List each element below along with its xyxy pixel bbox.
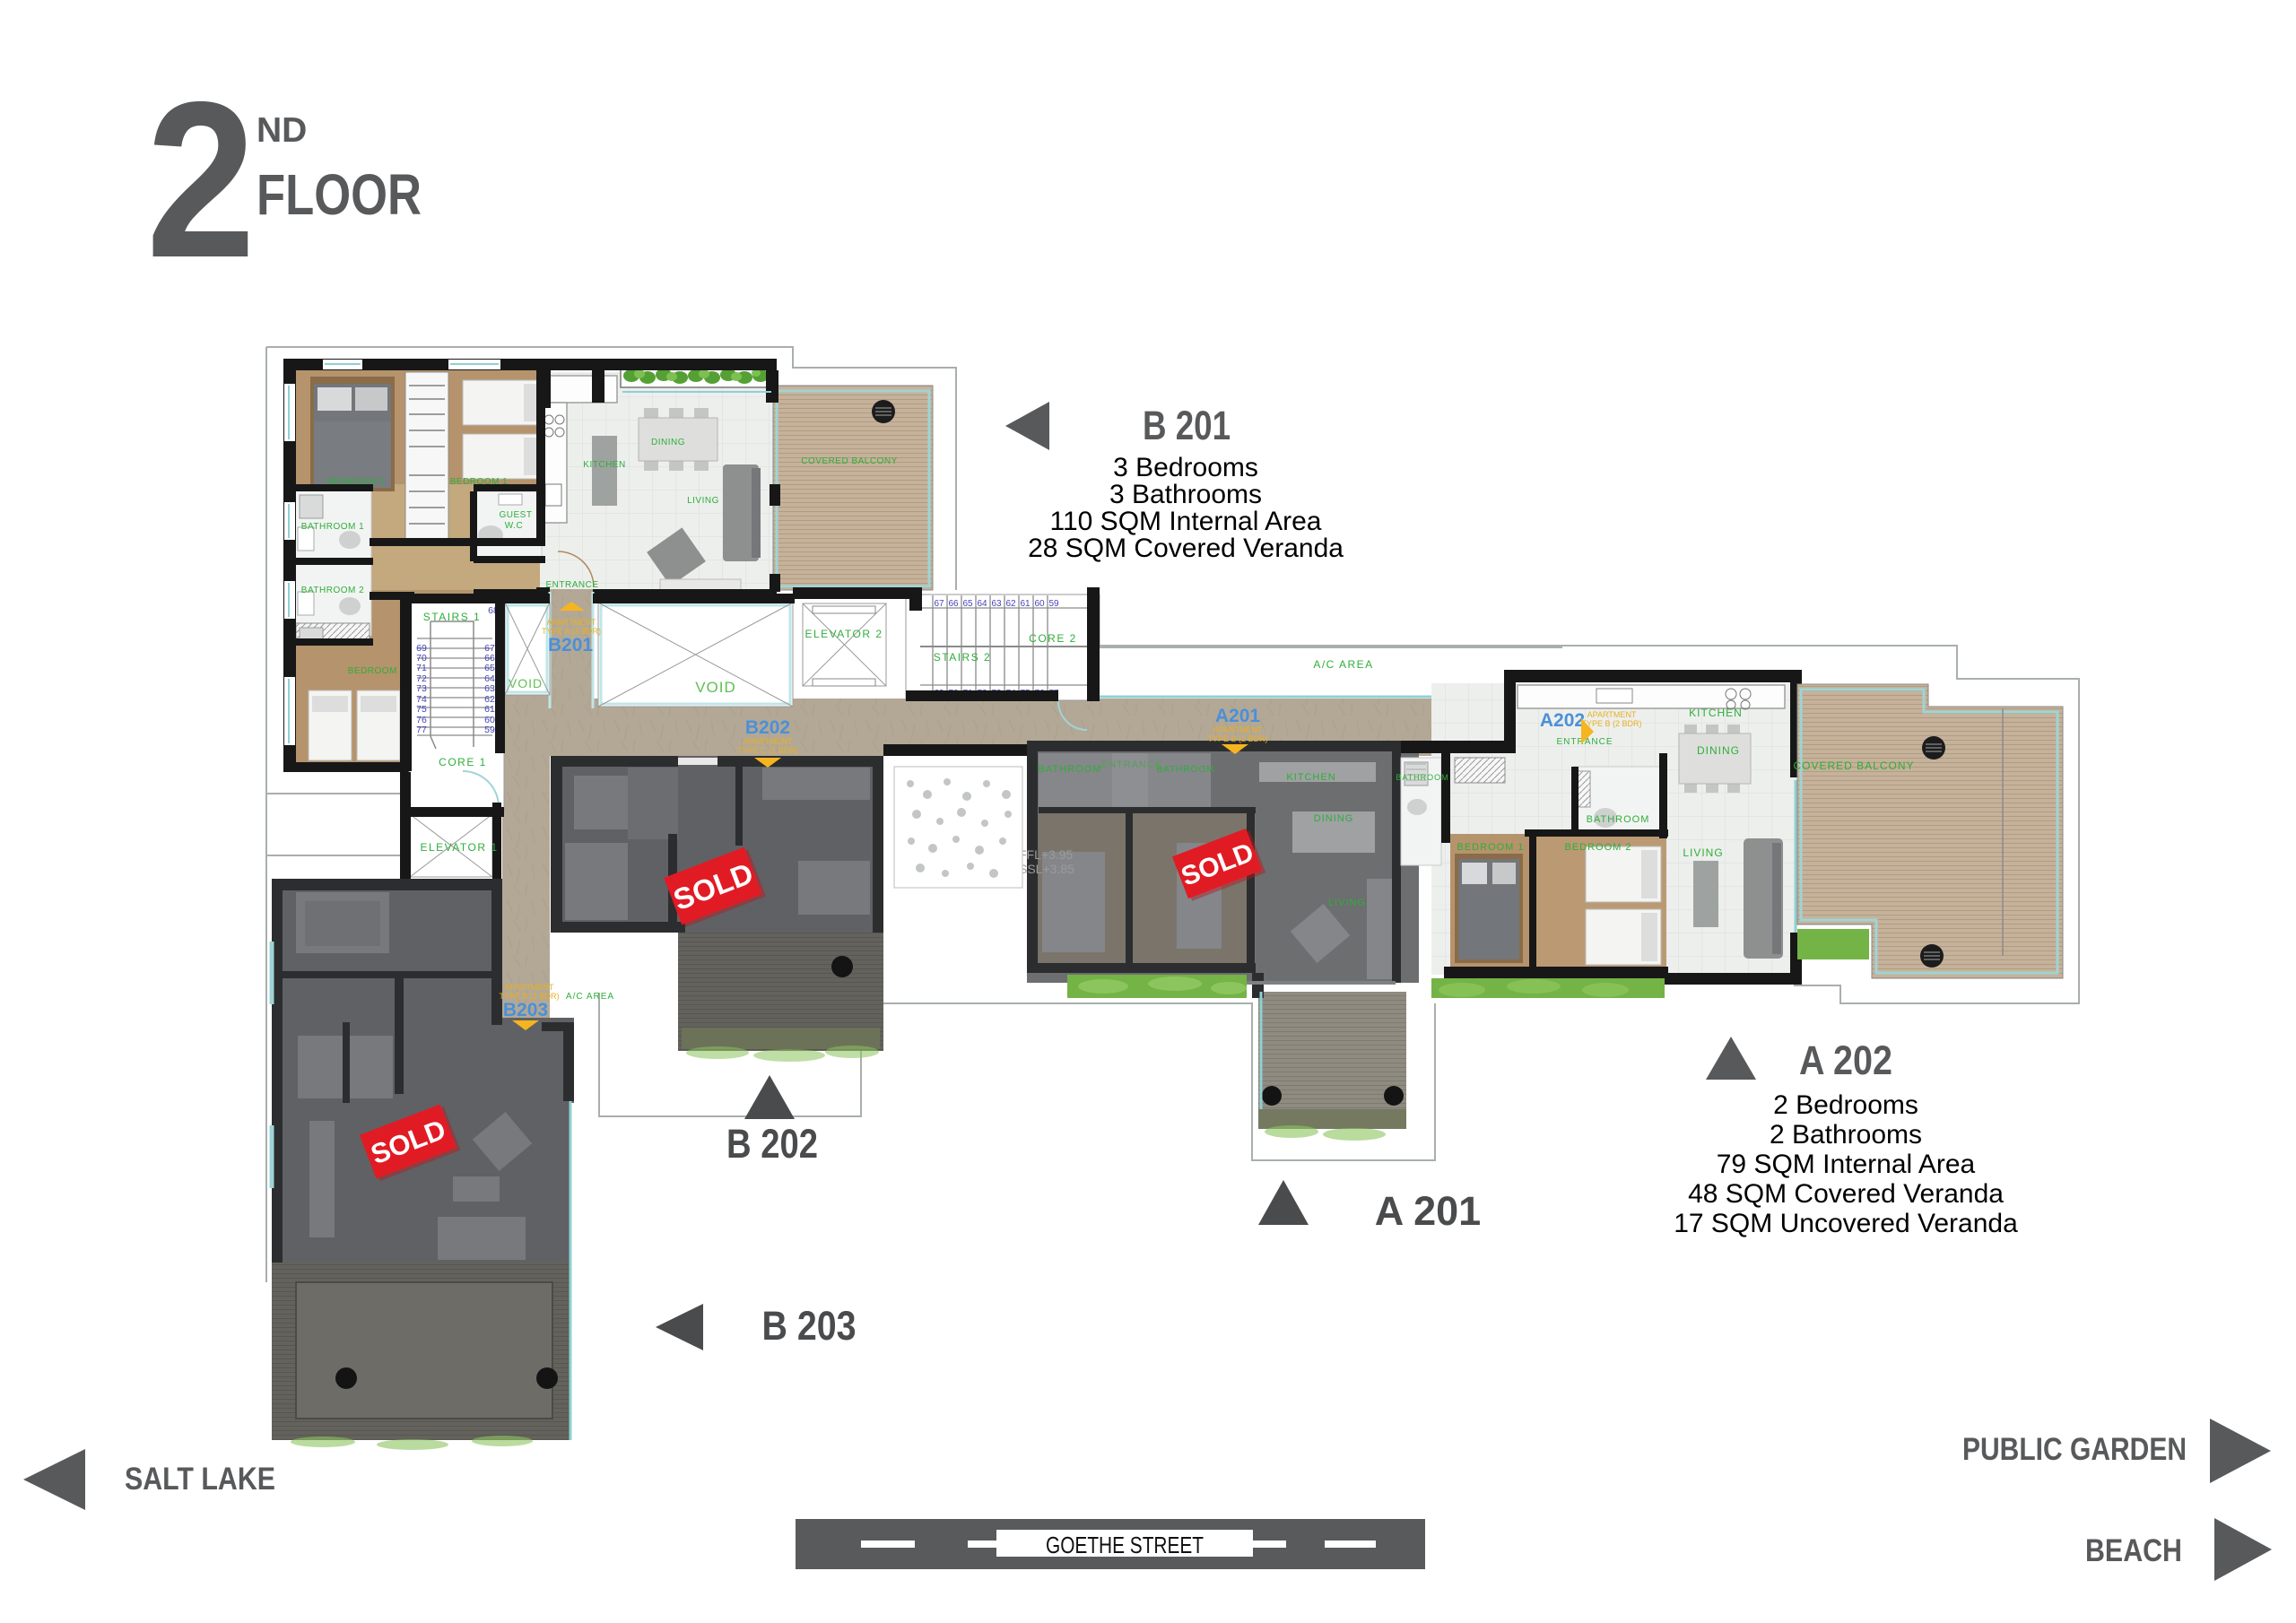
svg-text:STAIRS 2: STAIRS 2 [934,651,991,664]
svg-text:BATHROOM 2: BATHROOM 2 [301,586,364,595]
svg-text:79 SQM Internal Area: 79 SQM Internal Area [1717,1150,1976,1179]
svg-text:BEDROOM 3: BEDROOM 3 [348,666,406,676]
svg-text:B201: B201 [548,635,594,655]
svg-text:TYPE C (1 BDR): TYPE C (1 BDR) [737,746,798,755]
svg-text:PUBLIC GARDEN: PUBLIC GARDEN [1962,1432,2187,1467]
svg-text:A202: A202 [1540,710,1585,731]
svg-text:BATHROOM 1: BATHROOM 1 [301,522,364,532]
svg-text:BATHROOM: BATHROOM [1587,814,1650,825]
svg-text:ND: ND [257,111,307,150]
svg-text:BEDROOM 2: BEDROOM 2 [327,477,386,487]
svg-text:B203: B203 [503,1000,548,1020]
svg-text:APARTMENT: APARTMENT [547,618,596,627]
svg-text:B 202: B 202 [726,1121,818,1167]
svg-text:62: 62 [1005,599,1016,609]
svg-text:LIVING: LIVING [1328,898,1366,908]
svg-text:APARTMENT: APARTMENT [1213,725,1263,734]
svg-text:BEDROOM 1: BEDROOM 1 [1457,842,1524,853]
svg-text:APARTMENT: APARTMENT [744,737,793,746]
svg-text:SALT LAKE: SALT LAKE [125,1462,275,1497]
svg-text:BEACH: BEACH [2085,1533,2182,1568]
svg-text:2 Bedrooms: 2 Bedrooms [1773,1090,1918,1120]
svg-text:CORE 2: CORE 2 [1029,632,1077,645]
svg-text:GUEST: GUEST [500,510,533,520]
svg-text:BATHROOM: BATHROOM [1039,764,1102,775]
svg-text:75: 75 [416,704,427,715]
svg-text:VOID: VOID [509,676,543,690]
svg-text:TYPE B (2 BDR): TYPE B (2 BDR) [1581,719,1641,728]
svg-text:A/C AREA: A/C AREA [1313,658,1373,671]
svg-text:FFL+3.95: FFL+3.95 [1019,847,1074,862]
svg-text:LIVING: LIVING [687,496,719,506]
svg-text:28 SQM Covered Veranda: 28 SQM Covered Veranda [1028,534,1344,563]
svg-text:63: 63 [991,599,1002,609]
svg-text:DINING: DINING [1314,813,1354,824]
svg-text:APARTMENT: APARTMENT [505,983,554,992]
svg-text:KITCHEN: KITCHEN [583,460,625,470]
svg-text:BATHROOM: BATHROOM [1396,773,1448,782]
svg-text:61: 61 [1020,599,1031,609]
svg-text:B202: B202 [745,717,790,738]
svg-text:FLOOR: FLOOR [257,162,422,227]
svg-text:2 Bathrooms: 2 Bathrooms [1770,1120,1922,1150]
svg-text:KITCHEN: KITCHEN [1286,772,1335,783]
svg-text:B 203: B 203 [762,1303,857,1349]
svg-text:59: 59 [1048,599,1059,609]
svg-text:66: 66 [948,599,959,609]
svg-text:73: 73 [416,683,427,694]
svg-text:STAIRS 1: STAIRS 1 [423,611,481,623]
svg-text:LIVING: LIVING [1683,846,1723,859]
svg-text:A201: A201 [1215,706,1261,726]
svg-text:B 201: B 201 [1143,403,1231,448]
svg-text:APARTMENT: APARTMENT [1587,710,1637,719]
svg-text:COVERED BALCONY: COVERED BALCONY [801,456,898,466]
svg-text:A 201: A 201 [1375,1188,1481,1234]
svg-text:ENTRANCE: ENTRANCE [545,580,598,590]
svg-text:65: 65 [484,663,495,673]
svg-text:60: 60 [1034,599,1045,609]
svg-text:BATHROOM: BATHROOM [1156,765,1214,775]
svg-text:A 202: A 202 [1799,1037,1892,1083]
svg-text:71: 71 [416,663,427,673]
svg-text:17 SQM Uncovered Veranda: 17 SQM Uncovered Veranda [1674,1209,2018,1238]
svg-text:DINING: DINING [1697,744,1740,757]
svg-text:DINING: DINING [651,438,685,447]
svg-text:TYPE B (2 BDR): TYPE B (2 BDR) [1207,734,1267,743]
svg-text:SSL+3.85: SSL+3.85 [1019,862,1074,876]
svg-text:64: 64 [977,599,987,609]
svg-text:61: 61 [484,704,495,715]
svg-text:COVERED BALCONY: COVERED BALCONY [1793,759,1914,772]
svg-text:110 SQM Internal Area: 110 SQM Internal Area [1050,507,1322,536]
svg-text:CORE 1: CORE 1 [439,756,487,768]
svg-text:77: 77 [416,725,427,735]
svg-text:ELEVATOR 1: ELEVATOR 1 [420,841,498,854]
svg-text:65: 65 [962,599,973,609]
svg-text:48 SQM Covered Veranda: 48 SQM Covered Veranda [1688,1179,2004,1209]
svg-text:3 Bathrooms: 3 Bathrooms [1109,480,1262,509]
svg-text:GOETHE STREET: GOETHE STREET [1046,1532,1204,1558]
svg-text:BEDROOM 1: BEDROOM 1 [450,477,509,487]
svg-text:67: 67 [934,599,944,609]
svg-text:63: 63 [484,683,495,694]
svg-text:KITCHEN: KITCHEN [1689,707,1743,719]
svg-text:59: 59 [484,725,495,735]
svg-text:2: 2 [146,55,256,304]
svg-text:3 Bedrooms: 3 Bedrooms [1113,453,1258,482]
svg-text:ENTRANCE: ENTRANCE [1101,759,1163,770]
svg-text:ELEVATOR 2: ELEVATOR 2 [804,628,883,640]
svg-text:VOID: VOID [695,679,736,696]
svg-text:BEDROOM 2: BEDROOM 2 [1564,842,1631,853]
svg-text:W.C: W.C [505,521,523,531]
svg-text:A/C AREA: A/C AREA [566,992,614,1002]
